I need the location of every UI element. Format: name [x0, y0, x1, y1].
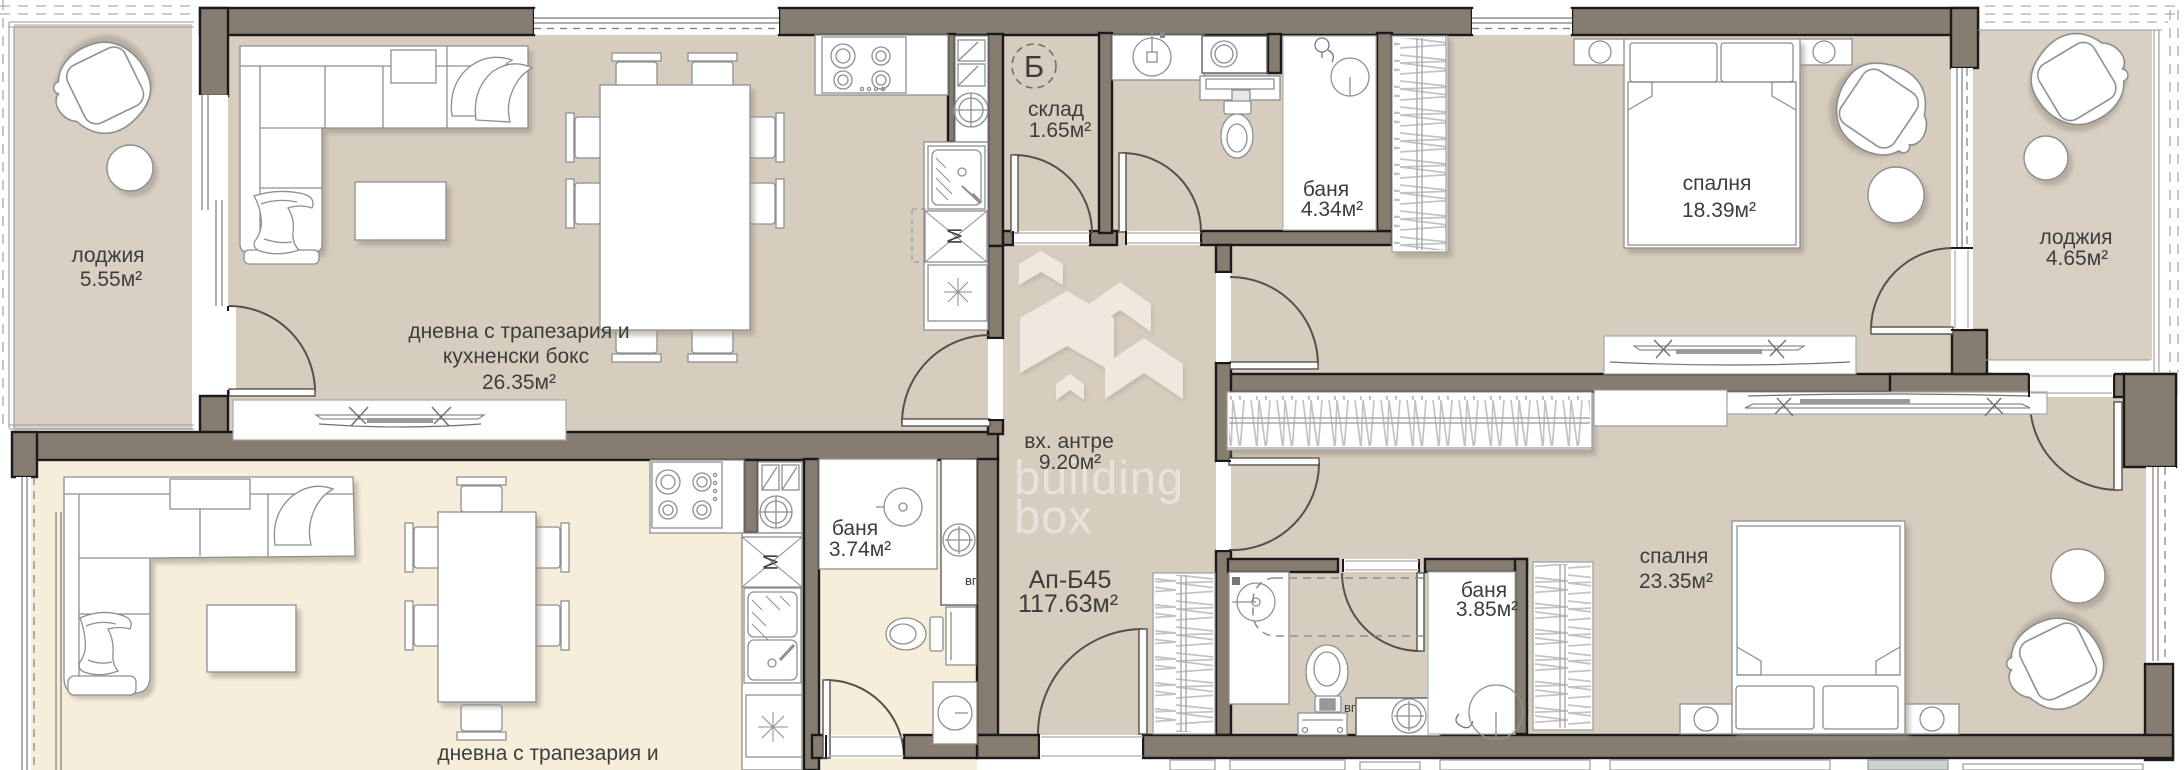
svg-text:117.63м²: 117.63м² — [1018, 590, 1118, 618]
svg-text:Б: Б — [1024, 49, 1044, 84]
svg-text:3.74м²: 3.74м² — [829, 538, 891, 561]
svg-text:кухненски бокс: кухненски бокс — [443, 345, 589, 368]
svg-text:5.55м²: 5.55м² — [80, 268, 142, 291]
svg-text:9.20м²: 9.20м² — [1039, 451, 1101, 474]
svg-text:4.65м²: 4.65м² — [2046, 247, 2108, 270]
svg-text:М: М — [760, 554, 782, 571]
svg-text:4.34м²: 4.34м² — [1301, 198, 1363, 221]
svg-text:дневна с трапезария и: дневна с трапезария и — [437, 742, 658, 765]
svg-text:спалня: спалня — [1683, 172, 1752, 195]
svg-text:склад: склад — [1028, 98, 1084, 121]
svg-text:спалня: спалня — [1640, 545, 1709, 568]
svg-text:вг: вг — [965, 573, 977, 588]
svg-text:26.35м²: 26.35м² — [482, 371, 556, 394]
svg-text:лоджия: лоджия — [2039, 226, 2112, 249]
svg-text:box: box — [1014, 490, 1093, 543]
svg-text:М: М — [944, 228, 966, 245]
svg-text:23.35м²: 23.35м² — [1639, 570, 1713, 593]
svg-text:лоджия: лоджия — [71, 244, 144, 267]
svg-text:18.39м²: 18.39м² — [1682, 199, 1756, 222]
svg-text:вх. антре: вх. антре — [1024, 430, 1114, 453]
svg-text:3.85м²: 3.85м² — [1456, 598, 1518, 621]
svg-text:дневна с трапезария и: дневна с трапезария и — [408, 320, 629, 343]
svg-text:1.65м²: 1.65м² — [1029, 119, 1091, 142]
svg-text:баня: баня — [832, 517, 878, 540]
svg-text:вг: вг — [1344, 700, 1356, 715]
